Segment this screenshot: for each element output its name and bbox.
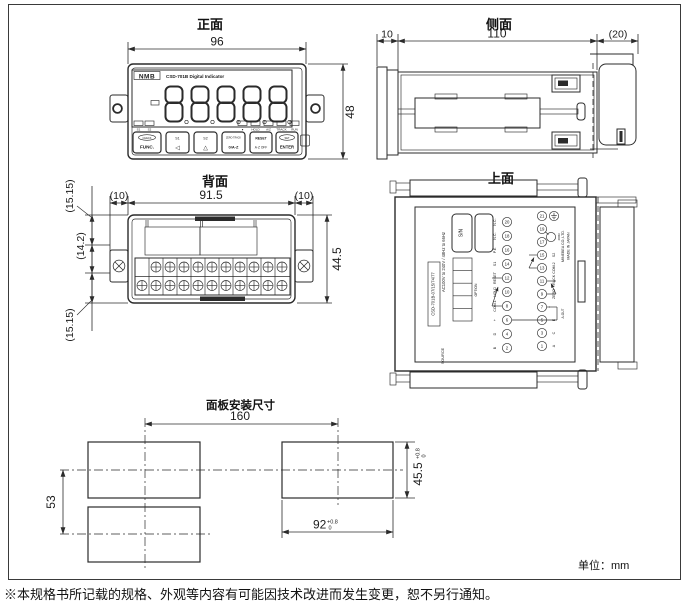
back-view-drawing: (10) 91.5 (10) (15.15) (14.2) (15.15) 44… <box>60 168 352 350</box>
terminal-label: C <box>552 331 556 334</box>
front-keys: CHECK FUNC. S1 ◁ S2 △ ZERO·TRACK 0/A·Z R… <box>133 132 310 153</box>
terminal-number: 3 <box>541 331 544 336</box>
side-dim-bezel-label: 10 <box>381 29 393 41</box>
terminal-number: 17 <box>540 240 545 245</box>
enter-key-top: SET <box>284 136 289 140</box>
back-connector-outline <box>145 220 257 255</box>
back-dim-height-label: 44.5 <box>330 247 344 271</box>
dim-92-tol-minus: 0 <box>329 526 332 532</box>
terminal-number: 12 <box>505 276 510 281</box>
aout-label: A-OUT <box>561 308 565 318</box>
func-key-top: CHECK <box>142 136 151 140</box>
terminal-label: P.E. <box>493 247 497 253</box>
terminal-number: 2 <box>506 346 509 351</box>
dim-160-label: 160 <box>230 409 250 423</box>
label-option: OPTION <box>474 283 478 297</box>
terminal-number: 16 <box>505 248 510 253</box>
top-clamp-lower <box>390 370 587 389</box>
enter-key: ENTER <box>280 145 294 150</box>
seven-segment-display <box>151 87 291 124</box>
minus-segment <box>151 101 159 106</box>
terminal-number: 19 <box>540 227 545 232</box>
zero-track-key: 0/A·Z <box>229 145 240 150</box>
side-bezel <box>377 67 398 159</box>
cutout-dim-455: 45.5 +0.8 0 <box>395 442 428 498</box>
label-origin: MADE IN JAPAN <box>567 232 571 260</box>
front-dim-height: 48 <box>308 64 357 159</box>
shunt-resistor: 400Ω <box>546 232 562 242</box>
top-label-panel: SOURCE AC100V to 240V / 48Hz to 66Hz CSD… <box>415 207 575 364</box>
terminal-label: + <box>493 319 497 321</box>
terminal-label: N.C. <box>493 218 497 225</box>
label-maker: MINEBEA CO.,LTD. <box>561 230 565 262</box>
dim-53-label: 53 <box>44 495 58 509</box>
front-dim-width: 96 <box>128 35 306 65</box>
s1-key: ◁ <box>175 146 180 152</box>
terminal-number: 9 <box>541 292 544 297</box>
terminal-number: 21 <box>540 214 545 219</box>
back-dim-ear-right: (10) <box>295 190 314 202</box>
cutout-dim-160: 160 <box>145 409 338 424</box>
cutout-dim-53: 53 <box>44 470 63 534</box>
annunciator-label: S2 <box>148 128 152 132</box>
terminal-column-even: 20 18 16 14 12 10 8 6 4 2 N.C. N.C. P.E.… <box>493 217 511 352</box>
annunciator-label: ● <box>242 128 244 132</box>
terminal-number: 1 <box>541 344 544 349</box>
side-dim-rear-label: (20) <box>609 29 628 41</box>
dim-92-label: 92 <box>313 518 327 532</box>
terminal-label: A <box>552 344 556 347</box>
terminal-label: N.C. <box>493 232 497 239</box>
annunciator-label: A/Z <box>266 128 271 132</box>
front-view-drawing: 96 48 NMB CSD-701B Digital Indicator <box>100 8 380 168</box>
terminal-number: 4 <box>506 332 509 337</box>
footnote: ※本规格书所记载的规格、外观等内容有可能因技术改进而发生变更，恕不另行通知。 <box>4 584 498 603</box>
resistor-label: 400Ω <box>557 233 561 241</box>
side-dims: 10 110 (20) <box>377 27 638 71</box>
annunciator-label: HOLD <box>251 128 260 132</box>
terminal-label: S2 <box>552 253 556 257</box>
terminal-number: 8 <box>506 304 509 309</box>
back-dim-width-label: 91.5 <box>199 188 223 202</box>
annunciator-label: RUN <box>291 128 298 132</box>
back-dim-height: 44.5 <box>297 215 344 303</box>
front-dim-width-label: 96 <box>210 35 224 49</box>
terminal-label: B <box>493 346 497 349</box>
brand-logo: NMB <box>139 74 155 81</box>
label-power: AC100V to 240V / 48Hz to 66Hz <box>441 232 446 292</box>
top-view-drawing: SOURCE AC100V to 240V / 48Hz to 66Hz CSD… <box>388 166 690 398</box>
back-dim-ear-left: (10) <box>110 190 129 202</box>
terminal-number: 18 <box>505 234 510 239</box>
terminal-number: 20 <box>505 220 510 225</box>
back-dim-top-label: (15.15) <box>64 179 76 212</box>
panel-cutout-drawing: 160 53 45.5 +0.8 0 92 +0.8 0 <box>30 392 450 578</box>
terminal-number: 15 <box>540 253 545 258</box>
unit-label: 单位：mm <box>578 557 629 573</box>
front-display-window: NMB CSD-701B Digital Indicator <box>132 70 299 132</box>
back-dim-mid-label: (14.2) <box>75 232 87 259</box>
dim-455-label: 45.5 <box>411 462 425 486</box>
back-dim-bottom-label: (15.15) <box>64 308 76 341</box>
terminal-label: RESET <box>493 271 497 284</box>
reset-key-top: RESET <box>255 137 267 141</box>
terminal-label: S1 <box>493 262 497 266</box>
terminal-number: 7 <box>541 305 544 310</box>
front-dim-height-label: 48 <box>343 105 357 119</box>
side-view-drawing: 10 110 (20) <box>360 8 690 170</box>
front-model-text: CSD-701B Digital Indicator <box>166 74 224 79</box>
terminal-number: 13 <box>540 266 545 271</box>
cutout-rects <box>88 442 393 562</box>
label-sn: S/N <box>459 228 465 237</box>
earth-symbol <box>549 211 558 220</box>
back-terminal-block <box>135 258 290 295</box>
annunciator-label: S1 <box>137 128 141 132</box>
terminal-number: 14 <box>505 262 510 267</box>
terminal-number: 11 <box>540 279 545 284</box>
label-source: SOURCE <box>441 347 445 364</box>
annunciator-label: TRACK <box>276 128 286 132</box>
terminal-number: 10 <box>505 290 510 295</box>
cutout-centerlines <box>60 418 403 570</box>
s2-key: △ <box>203 146 208 152</box>
reset-key: A·Z OFF <box>255 146 267 150</box>
terminal-label: D <box>493 332 497 335</box>
dim-455-tol-minus: 0 <box>422 454 428 457</box>
zero-track-key-top: ZERO·TRACK <box>226 137 241 140</box>
spec-sheet-page: 正面 侧面 背面 上面 面板安装尺寸 单位：mm ※本规格书所记载的规格、外观等… <box>0 0 690 604</box>
side-mount-screw <box>398 94 585 132</box>
annunciators: S1 S2 ● HOLD A/Z TRACK RUN <box>134 121 299 132</box>
side-mount-clips <box>552 75 580 149</box>
terminal-number: 6 <box>506 318 509 323</box>
s1-key-top: S1 <box>175 137 179 141</box>
cutout-dim-92: 92 +0.8 0 <box>282 500 393 538</box>
top-clamp-upper <box>390 178 587 197</box>
side-dim-depth-label: 110 <box>487 27 506 41</box>
terminal-label: COM.2 <box>552 262 556 273</box>
func-key: FUNC. <box>140 145 154 150</box>
label-model: CSD-701B-07/15/74/77 <box>431 272 436 316</box>
s2-key-top: S2 <box>203 137 207 141</box>
